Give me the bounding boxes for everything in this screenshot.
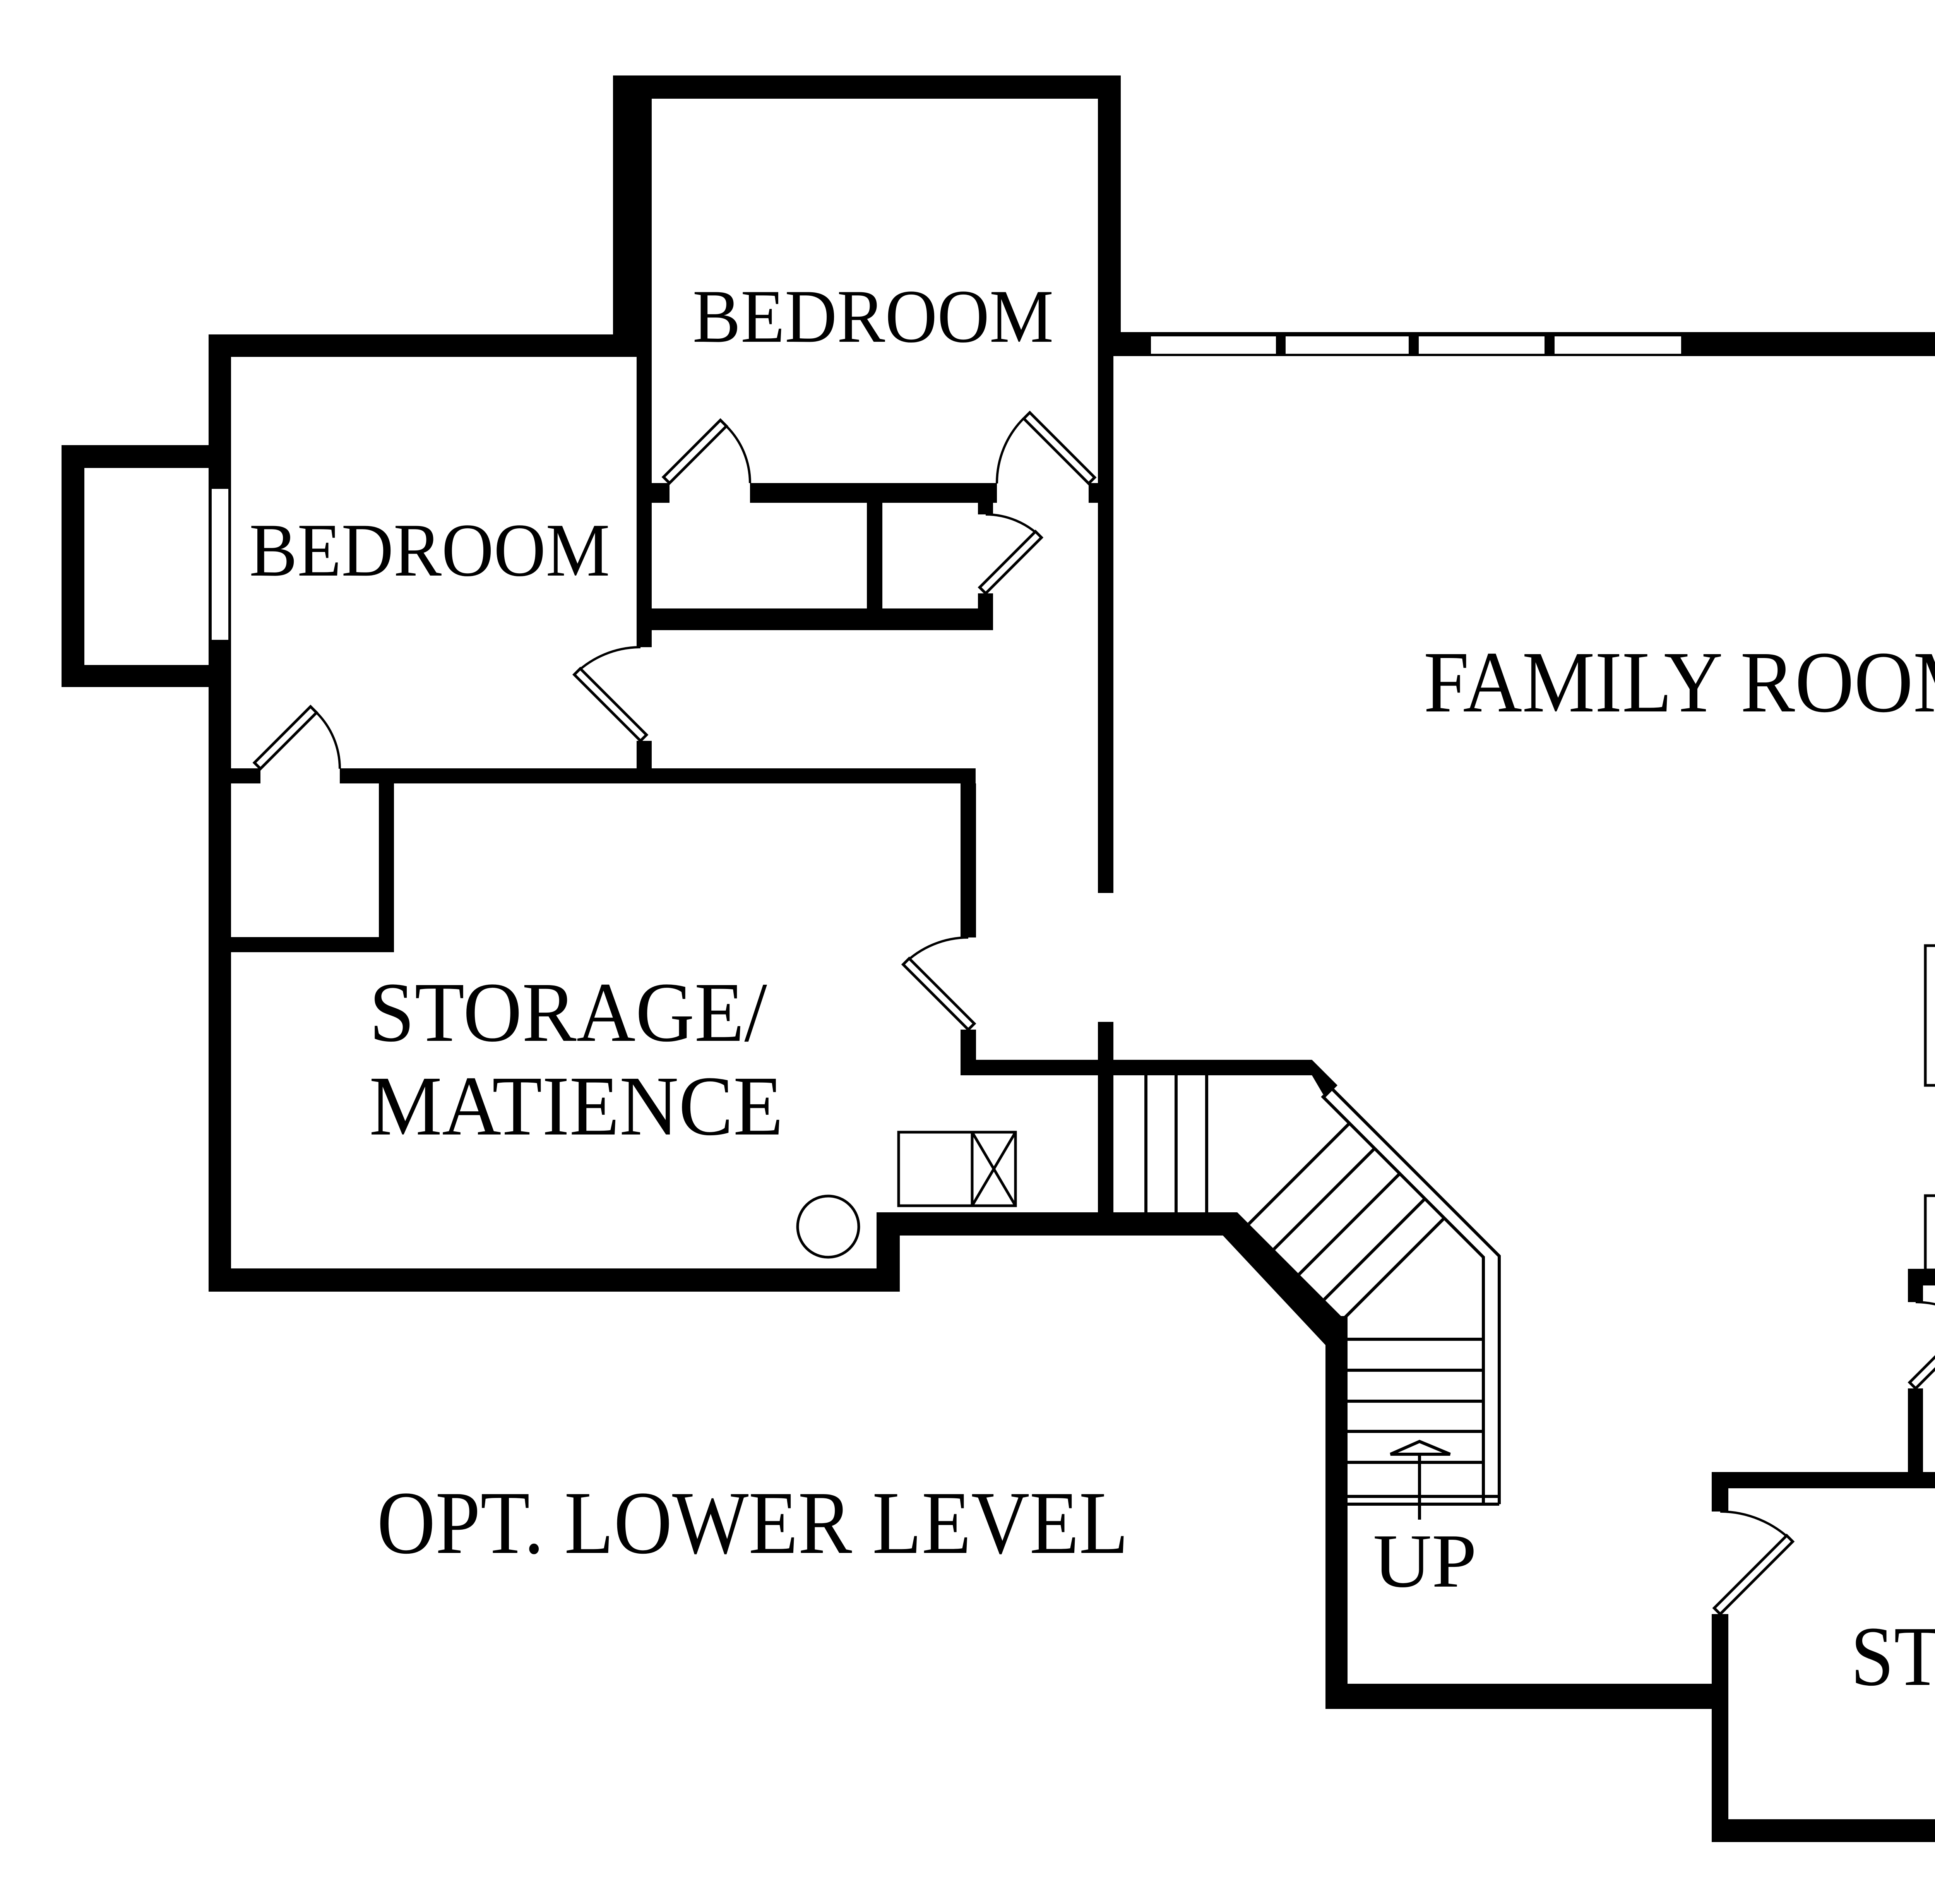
svg-text:FAMILY ROOM: FAMILY ROOM [1424, 634, 1935, 730]
svg-text:MATIENCE: MATIENCE [369, 1059, 783, 1153]
svg-text:UP: UP [1373, 1518, 1477, 1603]
svg-text:OPT. LOWER LEVEL: OPT. LOWER LEVEL [377, 1473, 1128, 1573]
svg-text:STORAGE/: STORAGE/ [369, 965, 767, 1059]
svg-text:STORAGE: STORAGE [1851, 1609, 1935, 1703]
svg-text:BEDROOM: BEDROOM [693, 274, 1054, 358]
svg-text:BEDROOM: BEDROOM [249, 508, 610, 592]
